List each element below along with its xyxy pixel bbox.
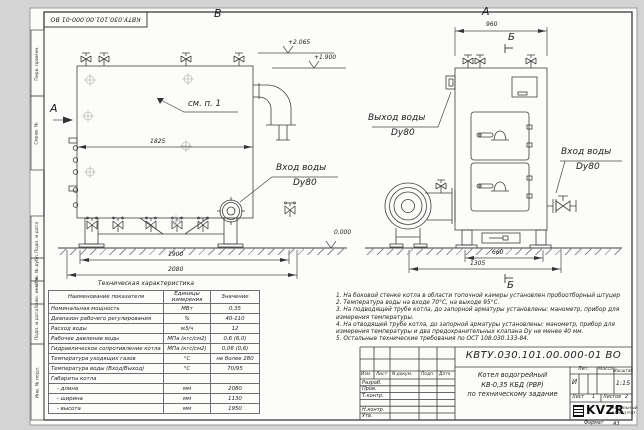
view-label-a-side: А (50, 103, 58, 114)
dim-2080: 2080 (168, 267, 183, 273)
view-label-b: В (214, 8, 222, 19)
spec-cell: % (164, 314, 211, 324)
level-mark-0000: 0.000 (334, 230, 351, 236)
stamp-podp-data-2: Подп. и дата (31, 304, 44, 344)
dim-1900: 1900 (168, 252, 183, 258)
role-nkontr: Н.контр. (362, 408, 384, 413)
spec-cell: 0,06 (0,6) (211, 344, 260, 354)
spec-cell: мм (164, 384, 211, 394)
role-utv: Утв. (362, 414, 373, 419)
stamp-podp-data-1: Подп. и дата (31, 216, 44, 258)
stamp-vzam-inv: Взам. инв. № (31, 281, 44, 304)
role-prov: Пров. (362, 387, 377, 392)
stamp-sprav-no: Справ. № (31, 96, 44, 170)
spec-header-row: Наименование показателя Единицы измерени… (49, 291, 260, 304)
inlet-water-label-left: Вход воды (276, 164, 326, 173)
spec-cell: Рабочее давление воды (49, 334, 164, 344)
spec-cell (211, 374, 260, 384)
outlet-water-dn: Dy80 (391, 129, 415, 138)
dim-660: 660 (492, 250, 503, 256)
spec-header-value: Значение (211, 291, 260, 304)
spec-cell: Диапазон рабочего регулирования (49, 314, 164, 324)
title-block-doc-number: КВТУ.030.101.00.000-01 ВО (455, 351, 632, 361)
spec-cell: 0,6 (6,0) (211, 334, 260, 344)
spec-cell: Габариты котла (49, 374, 164, 384)
spec-row: Гидравлическое сопротивление котлаМПа (к… (49, 344, 260, 354)
sheet-label: Лист (572, 396, 584, 401)
scale-value: 1:15 (614, 380, 632, 387)
sheet-value: 1 (592, 396, 595, 401)
stamp-label: Перв. примен. (35, 46, 40, 81)
inlet-water-dn-left: Dy80 (293, 179, 317, 188)
spec-cell: МПа (кгс/см2) (164, 344, 211, 354)
spec-cell: Температура уходящих газов (49, 354, 164, 364)
spec-row: Номинальная мощностьМВт0,35 (49, 304, 260, 314)
stamp-label: Подп. и дата (35, 221, 40, 252)
dim-1305: 1305 (470, 261, 485, 267)
lit-label: Лит. (570, 368, 597, 373)
section-mark-b-top: Б (508, 33, 515, 43)
product-name-line3: по техническому задание (455, 391, 570, 398)
spec-cell: - ширина (49, 394, 164, 404)
col-ndokum: N докум. (392, 373, 412, 377)
spec-cell: 40-110 (211, 314, 260, 324)
spec-header-units: Единицы измерения (164, 291, 211, 304)
spec-cell (164, 374, 211, 384)
sheets-label: Листов (603, 396, 621, 401)
product-name-line1: Котел водогрейный (455, 372, 570, 379)
spec-row: Температура воды (Вход/Выход)°С70/95 (49, 364, 260, 374)
spec-table: Наименование показателя Единицы измерени… (48, 290, 260, 414)
dim-960: 960 (486, 22, 497, 28)
spec-cell: м3/ч (164, 324, 211, 334)
scale-label: Масштаб (613, 369, 632, 373)
callout-see-item-1: см. п. 1 (188, 100, 221, 109)
note-1: 1. На боковой стенке котла в области топ… (336, 293, 632, 300)
spec-cell: Номинальная мощность (49, 304, 164, 314)
spec-cell: Температура воды (Вход/Выход) (49, 364, 164, 374)
spec-cell: 12 (211, 324, 260, 334)
col-data: Дата (439, 373, 450, 377)
spec-cell: °С (164, 364, 211, 374)
spec-row: - длинамм2080 (49, 384, 260, 394)
spec-row: Габариты котла (49, 374, 260, 384)
role-tkontr: Т.контр. (362, 394, 384, 399)
section-mark-b-bottom: Б (507, 281, 514, 291)
spec-row: - высотамм1950 (49, 404, 260, 414)
kvzr-logo-icon (573, 405, 584, 417)
spec-cell: 1130 (211, 394, 260, 404)
inlet-water-label-right: Вход воды (561, 148, 611, 157)
stamp-perv-primen: Перв. примен. (31, 30, 44, 96)
spec-row: Температура уходящих газов°Сне более 280 (49, 354, 260, 364)
org-name-line2: ЗАВОД РЭП (612, 411, 635, 415)
mass-label: Масса (597, 368, 614, 373)
lit-value: И (570, 379, 579, 386)
level-mark-1900: +1.900 (314, 55, 336, 61)
format-label: Формат (584, 422, 603, 427)
spec-cell: не более 280 (211, 354, 260, 364)
ground-hatch-left (58, 248, 347, 255)
spec-row: - ширинамм1130 (49, 394, 260, 404)
spec-table-title: Техническая характеристика (48, 281, 244, 287)
spec-cell: мм (164, 394, 211, 404)
note-5: 5. Остальные технические требования по О… (336, 336, 632, 343)
spec-row: Расход водым3/ч12 (49, 324, 260, 334)
spec-cell: Расход воды (49, 324, 164, 334)
col-podp: Подп. (421, 373, 434, 377)
spec-cell: 0,35 (211, 304, 260, 314)
view-label-a-front: А (482, 6, 490, 17)
spec-cell: МПа (кгс/см2) (164, 334, 211, 344)
spec-cell: 70/95 (211, 364, 260, 374)
spec-cell: 1950 (211, 404, 260, 414)
technical-notes: 1. На боковой стенке котла в области топ… (336, 293, 632, 343)
stamp-label: Подп. и дата (35, 308, 40, 339)
note-2: 2. Температура воды на входе 70°С, на вы… (336, 300, 632, 307)
spec-cell: Гидравлическое сопротивление котла (49, 344, 164, 354)
col-izm: Изм (361, 373, 370, 377)
spec-cell: °С (164, 354, 211, 364)
note-4: 4. На отводящей трубе котла, до запорной… (336, 322, 632, 336)
spec-cell: - высота (49, 404, 164, 414)
dim-1825: 1825 (150, 139, 165, 145)
spec-row: Диапазон рабочего регулирования%40-110 (49, 314, 260, 324)
spec-cell: - длина (49, 384, 164, 394)
format-value: А3 (613, 422, 620, 427)
sheets-value: 2 (625, 396, 628, 401)
inlet-water-dn-right: Dy80 (576, 163, 600, 172)
note-3: 3. На подводящей трубе котла, до запорно… (336, 307, 632, 321)
stamp-inv-podl: Инв. № подл. (31, 344, 44, 420)
stamp-label: Справ. № (35, 122, 40, 144)
role-razrab: Разраб. (362, 381, 382, 386)
drawing-sheet: КВТУ.030.101.00.000-01 ВО Перв. примен. … (0, 0, 644, 430)
spec-cell: МВт (164, 304, 211, 314)
spec-cell: 2080 (211, 384, 260, 394)
spec-header-name: Наименование показателя (49, 291, 164, 304)
top-stamp-number: КВТУ.030.101.00.000-01 ВО (46, 15, 145, 21)
col-list: Лист (376, 373, 387, 377)
outlet-water-label: Выход воды (368, 114, 425, 123)
level-mark-2065: +2.065 (288, 40, 310, 46)
product-name-line2: КВ-0,35 КБД (РВР) (455, 382, 570, 389)
stamp-label: Инв. № подл. (35, 366, 40, 398)
spec-cell: мм (164, 404, 211, 414)
spec-row: Рабочее давление водыМПа (кгс/см2)0,6 (6… (49, 334, 260, 344)
